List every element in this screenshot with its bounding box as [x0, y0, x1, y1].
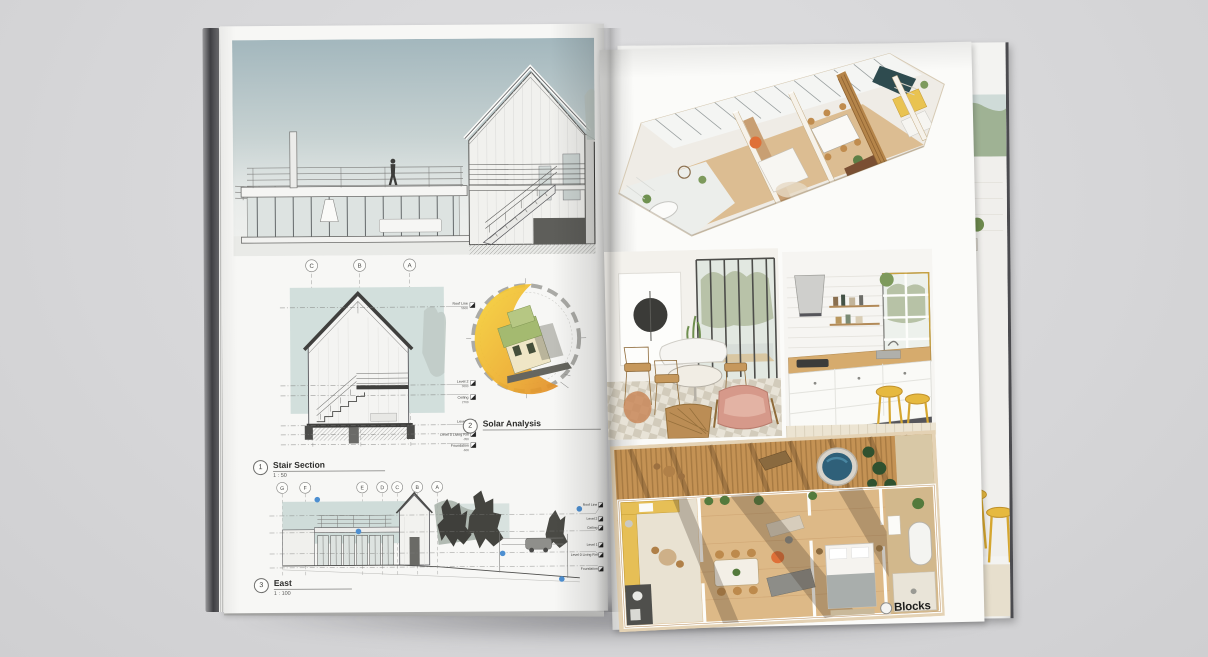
- east-level-annotations: Roof Line Level 2 Ceiling Level 1 Level …: [570, 503, 603, 572]
- chimney: [290, 132, 297, 188]
- living-room-render: [604, 248, 782, 440]
- figure-title: Solar Analysis: [483, 418, 601, 431]
- svg-text:F: F: [304, 486, 307, 492]
- east-elevation-drawing: G F E D C B A: [249, 476, 606, 594]
- furniture: [371, 413, 397, 421]
- stair-section-drawing: C B A: [252, 255, 483, 459]
- right-page: Blocks: [599, 42, 984, 630]
- left-page: C B A: [220, 24, 608, 614]
- sink: [888, 516, 901, 535]
- plan-bathroom: [884, 487, 938, 614]
- isometric-cutaway-render: [604, 46, 960, 249]
- open-magazine: C B A: [0, 0, 1208, 657]
- blocks-logo-icon: [880, 602, 893, 615]
- cooktop: [796, 359, 828, 368]
- sofa: [379, 219, 441, 232]
- figure-scale: 1 : 50: [273, 472, 385, 479]
- rattan-lounge-chair: [665, 404, 712, 439]
- figure-scale: 1 : 100: [274, 590, 352, 597]
- svg-text:C: C: [309, 264, 314, 270]
- svg-text:B: B: [358, 264, 362, 270]
- svg-text:Level 1: Level 1: [587, 543, 598, 547]
- roof-deck-slab: [241, 186, 467, 198]
- svg-text:Roof Line: Roof Line: [583, 503, 598, 507]
- footing: [349, 427, 359, 443]
- blocks-logo-text: Blocks: [894, 600, 931, 614]
- caption-solar-analysis: 2 Solar Analysis: [463, 418, 601, 434]
- svg-text:-600: -600: [463, 448, 469, 452]
- undercroft: [533, 218, 585, 244]
- blocks-logo: Blocks: [880, 600, 931, 614]
- figure-title: East: [274, 577, 352, 590]
- bathtub: [908, 522, 932, 566]
- solar-analysis-diagram: [460, 270, 596, 421]
- svg-text:-350: -350: [463, 437, 469, 441]
- svg-text:A: A: [435, 485, 439, 491]
- level-head-icons: [598, 503, 603, 572]
- svg-text:Foundation: Foundation: [451, 444, 469, 448]
- figure-number-bubble: 1: [253, 460, 268, 475]
- svg-text:Foundation: Foundation: [581, 567, 598, 571]
- svg-text:E: E: [360, 485, 364, 491]
- figure-scale: [483, 431, 601, 432]
- svg-text:B: B: [415, 485, 419, 491]
- range-hood: [795, 275, 826, 314]
- kitchen-render: [782, 249, 936, 438]
- caption-stair-section: 1 Stair Section 1 : 50: [253, 459, 385, 479]
- window: [563, 154, 580, 200]
- figure-title: Stair Section: [273, 459, 385, 472]
- sectional-perspective-image: [232, 38, 595, 257]
- svg-text:C: C: [395, 485, 399, 491]
- svg-text:G: G: [280, 486, 284, 492]
- level2-slab: [356, 385, 408, 389]
- sink: [876, 350, 900, 359]
- caption-east: 3 East 1 : 100: [254, 577, 352, 597]
- svg-text:Level 2: Level 2: [586, 517, 597, 521]
- svg-text:Level 0 Living Rm: Level 0 Living Rm: [571, 553, 598, 557]
- svg-text:A: A: [408, 263, 412, 269]
- figure-number-bubble: 3: [254, 578, 269, 593]
- svg-text:Ceiling: Ceiling: [587, 526, 598, 530]
- figure-number-bubble: 2: [463, 419, 478, 434]
- svg-text:D: D: [380, 485, 384, 491]
